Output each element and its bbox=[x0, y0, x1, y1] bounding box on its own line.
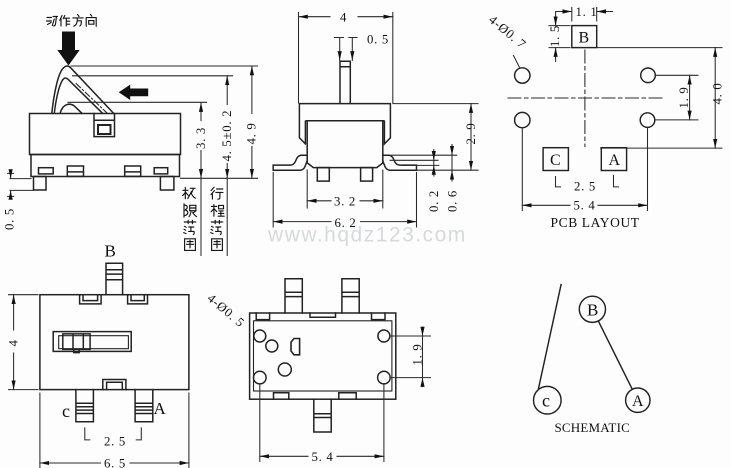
svg-text:A: A bbox=[609, 152, 621, 169]
svg-text:3. 3: 3. 3 bbox=[194, 127, 208, 149]
svg-text:0. 2: 0. 2 bbox=[427, 190, 441, 212]
svg-text:4: 4 bbox=[6, 339, 20, 346]
svg-text:4. 9: 4. 9 bbox=[245, 123, 259, 145]
svg-text:4: 4 bbox=[340, 11, 347, 25]
svg-text:3. 2: 3. 2 bbox=[334, 194, 356, 208]
svg-text:B: B bbox=[579, 30, 590, 47]
svg-text:4-Ø0. 5: 4-Ø0. 5 bbox=[205, 291, 248, 330]
svg-text:c: c bbox=[542, 391, 550, 411]
svg-text:SCHEMATIC: SCHEMATIC bbox=[555, 420, 630, 435]
svg-text:2. 5: 2. 5 bbox=[574, 180, 596, 194]
svg-text:1. 9: 1. 9 bbox=[677, 87, 691, 109]
svg-text:2. 5: 2. 5 bbox=[104, 435, 126, 449]
svg-text:1. 1: 1. 1 bbox=[576, 5, 598, 19]
svg-text:5. 4: 5. 4 bbox=[312, 450, 334, 464]
svg-text:0. 6: 0. 6 bbox=[446, 190, 460, 212]
svg-text:2. 9: 2. 9 bbox=[464, 123, 478, 145]
svg-text:1. 5: 1. 5 bbox=[548, 25, 562, 47]
svg-text:PCB LAYOUT: PCB LAYOUT bbox=[551, 215, 640, 230]
svg-text:B: B bbox=[105, 242, 116, 261]
svg-text:4. 0: 4. 0 bbox=[711, 83, 725, 105]
svg-text:c: c bbox=[62, 401, 70, 421]
svg-text:1. 9: 1. 9 bbox=[411, 344, 425, 366]
svg-text:4-Ø0. 7: 4-Ø0. 7 bbox=[486, 13, 529, 52]
svg-text:C: C bbox=[550, 152, 561, 169]
svg-text:5. 4: 5. 4 bbox=[574, 199, 596, 213]
svg-text:A: A bbox=[632, 393, 644, 410]
svg-text:0. 5: 0. 5 bbox=[3, 208, 17, 230]
svg-text:4. 5±0. 2: 4. 5±0. 2 bbox=[220, 110, 234, 162]
svg-text:6. 5: 6. 5 bbox=[104, 456, 126, 468]
svg-text:6. 2: 6. 2 bbox=[335, 216, 357, 230]
svg-text:www.hqdz123.com: www.hqdz123.com bbox=[267, 224, 467, 247]
svg-text:0. 5: 0. 5 bbox=[367, 33, 389, 47]
svg-text:A: A bbox=[154, 399, 167, 418]
svg-text:B: B bbox=[587, 301, 598, 320]
